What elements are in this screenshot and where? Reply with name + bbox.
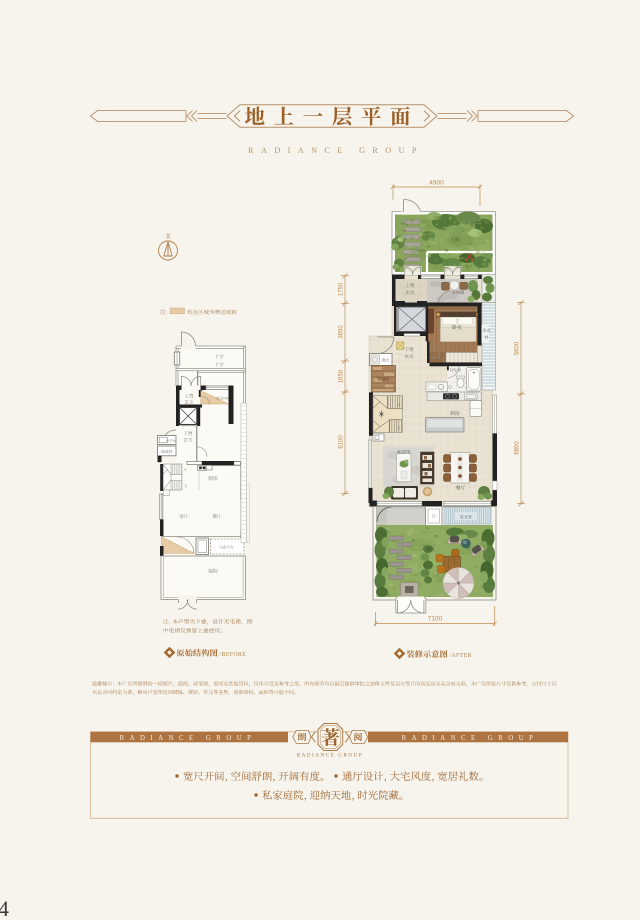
- svg-text:1750: 1750: [339, 282, 345, 296]
- svg-text:4: 4: [0, 896, 9, 920]
- svg-text:5600: 5600: [515, 341, 521, 355]
- svg-text:6800: 6800: [515, 441, 521, 455]
- svg-text:7100: 7100: [428, 616, 443, 623]
- svg-text:1650: 1650: [339, 369, 345, 383]
- svg-text:3650: 3650: [339, 325, 345, 339]
- svg-text:RADIANCE GROUP: RADIANCE GROUP: [297, 754, 363, 759]
- svg-text:4900: 4900: [429, 180, 444, 187]
- svg-text:/AFTER: /AFTER: [450, 653, 472, 659]
- svg-text:RADIANCE GROUP: RADIANCE GROUP: [120, 735, 257, 742]
- svg-text:/BEFORE: /BEFORE: [220, 652, 247, 658]
- svg-text:RADIANCE GROUP: RADIANCE GROUP: [248, 146, 424, 155]
- svg-text:6100: 6100: [339, 435, 345, 449]
- svg-text:RADIANCE GROUP: RADIANCE GROUP: [402, 735, 539, 742]
